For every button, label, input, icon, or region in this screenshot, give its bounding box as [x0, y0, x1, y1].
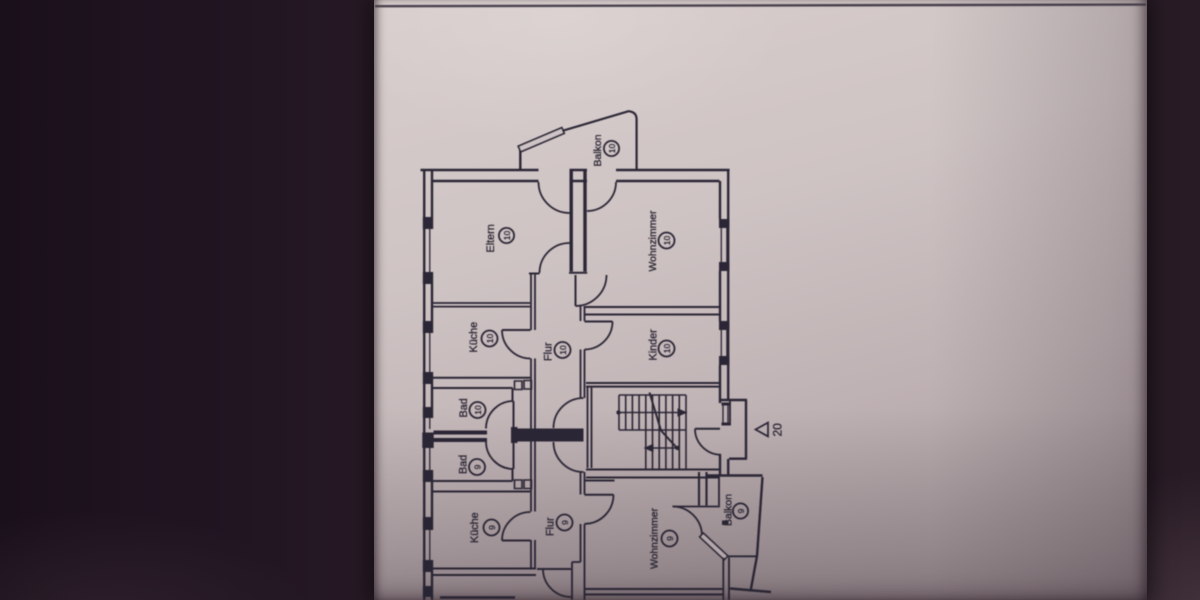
- svg-text:10: 10: [558, 345, 568, 355]
- svg-text:Wohnzimmer: Wohnzimmer: [648, 210, 659, 272]
- svg-text:10: 10: [662, 236, 672, 246]
- svg-text:Wohnzimmer: Wohnzimmer: [650, 507, 661, 569]
- svg-text:Eltern: Eltern: [485, 224, 497, 252]
- svg-text:Küche: Küche: [468, 322, 480, 353]
- svg-text:Küche: Küche: [469, 512, 481, 543]
- svg-text:9: 9: [736, 508, 746, 513]
- svg-text:9: 9: [560, 520, 570, 525]
- svg-text:Balkon: Balkon: [592, 134, 604, 166]
- svg-text:Flur: Flur: [543, 342, 555, 361]
- svg-text:9: 9: [665, 536, 675, 541]
- svg-text:9: 9: [487, 525, 497, 530]
- svg-text:9: 9: [472, 464, 482, 469]
- svg-text:10: 10: [485, 334, 495, 344]
- svg-text:10: 10: [607, 144, 617, 154]
- svg-text:10: 10: [662, 344, 672, 354]
- svg-text:10: 10: [473, 405, 483, 415]
- svg-text:Flur: Flur: [545, 517, 557, 536]
- svg-text:20: 20: [771, 423, 785, 437]
- svg-text:Kinder: Kinder: [648, 329, 660, 361]
- svg-text:Bad: Bad: [458, 398, 470, 417]
- svg-text:10: 10: [502, 231, 512, 241]
- svg-text:Bad: Bad: [458, 455, 470, 474]
